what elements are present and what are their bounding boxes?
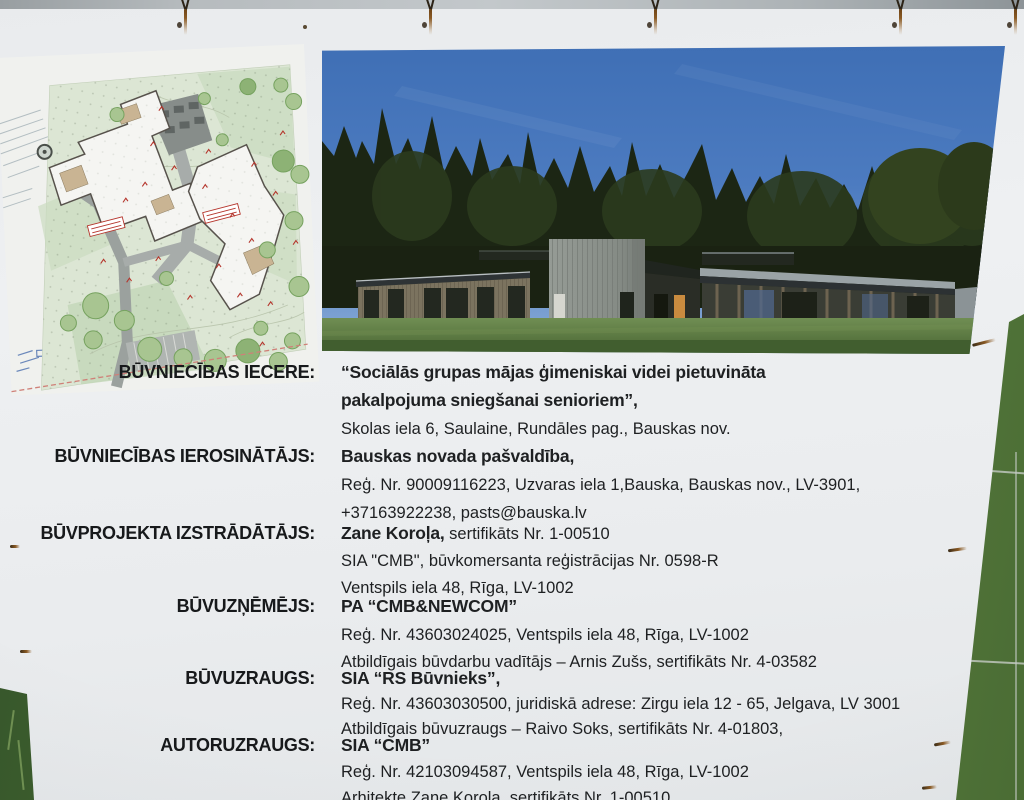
block-line: pakalpojuma sniegšanai senioriem”, (341, 387, 1006, 415)
block-label: BŪVUZŅĒMĒJS: (0, 593, 315, 620)
block-line: PA “CMB&NEWCOM” (341, 593, 1006, 621)
block-line: Skolas iela 6, Saulaine, Rundāles pag., … (341, 415, 1006, 443)
block-line: Zane Koroļa, sertifikāts Nr. 1-00510 (341, 520, 1006, 547)
block-line: SIA “RS Būvnieks”, (341, 666, 1006, 691)
block-line: Reģ. Nr. 42103094587, Ventspils iela 48,… (341, 759, 1006, 785)
photo-scene: BŪVNIECĪBAS IECERE: “Sociālās grupas māj… (0, 0, 1024, 800)
block-label: BŪVPROJEKTA IZSTRĀDĀTĀJS: (0, 520, 315, 546)
block-line: Reģ. Nr. 43603030500, juridiskā adrese: … (341, 691, 1006, 716)
block-line: Reģ. Nr. 43603024025, Ventspils iela 48,… (341, 621, 1006, 649)
block-line: “Sociālās grupas mājas ģimeniskai videi … (341, 359, 1006, 387)
block-label: AUTORUZRAUGS: (0, 733, 315, 758)
block-label: BŪVNIECĪBAS IECERE: (0, 359, 315, 386)
block-line: Bauskas novada pašvaldība, (341, 443, 1006, 471)
block-label: BŪVUZRAUGS: (0, 666, 315, 690)
block-label: BŪVNIECĪBAS IEROSINĀTĀJS: (0, 443, 315, 470)
block-line: Arhitekte Zane Koroļa, sertifikāts Nr. 1… (341, 785, 1006, 800)
block-line: SIA “CMB” (341, 733, 1006, 759)
block-line: Reģ. Nr. 90009116223, Uzvaras iela 1,Bau… (341, 471, 1006, 499)
block-line: SIA "CMB", būvkomersanta reģistrācijas N… (341, 547, 1006, 574)
board-info-text: BŪVNIECĪBAS IECERE: “Sociālās grupas māj… (0, 0, 1024, 800)
